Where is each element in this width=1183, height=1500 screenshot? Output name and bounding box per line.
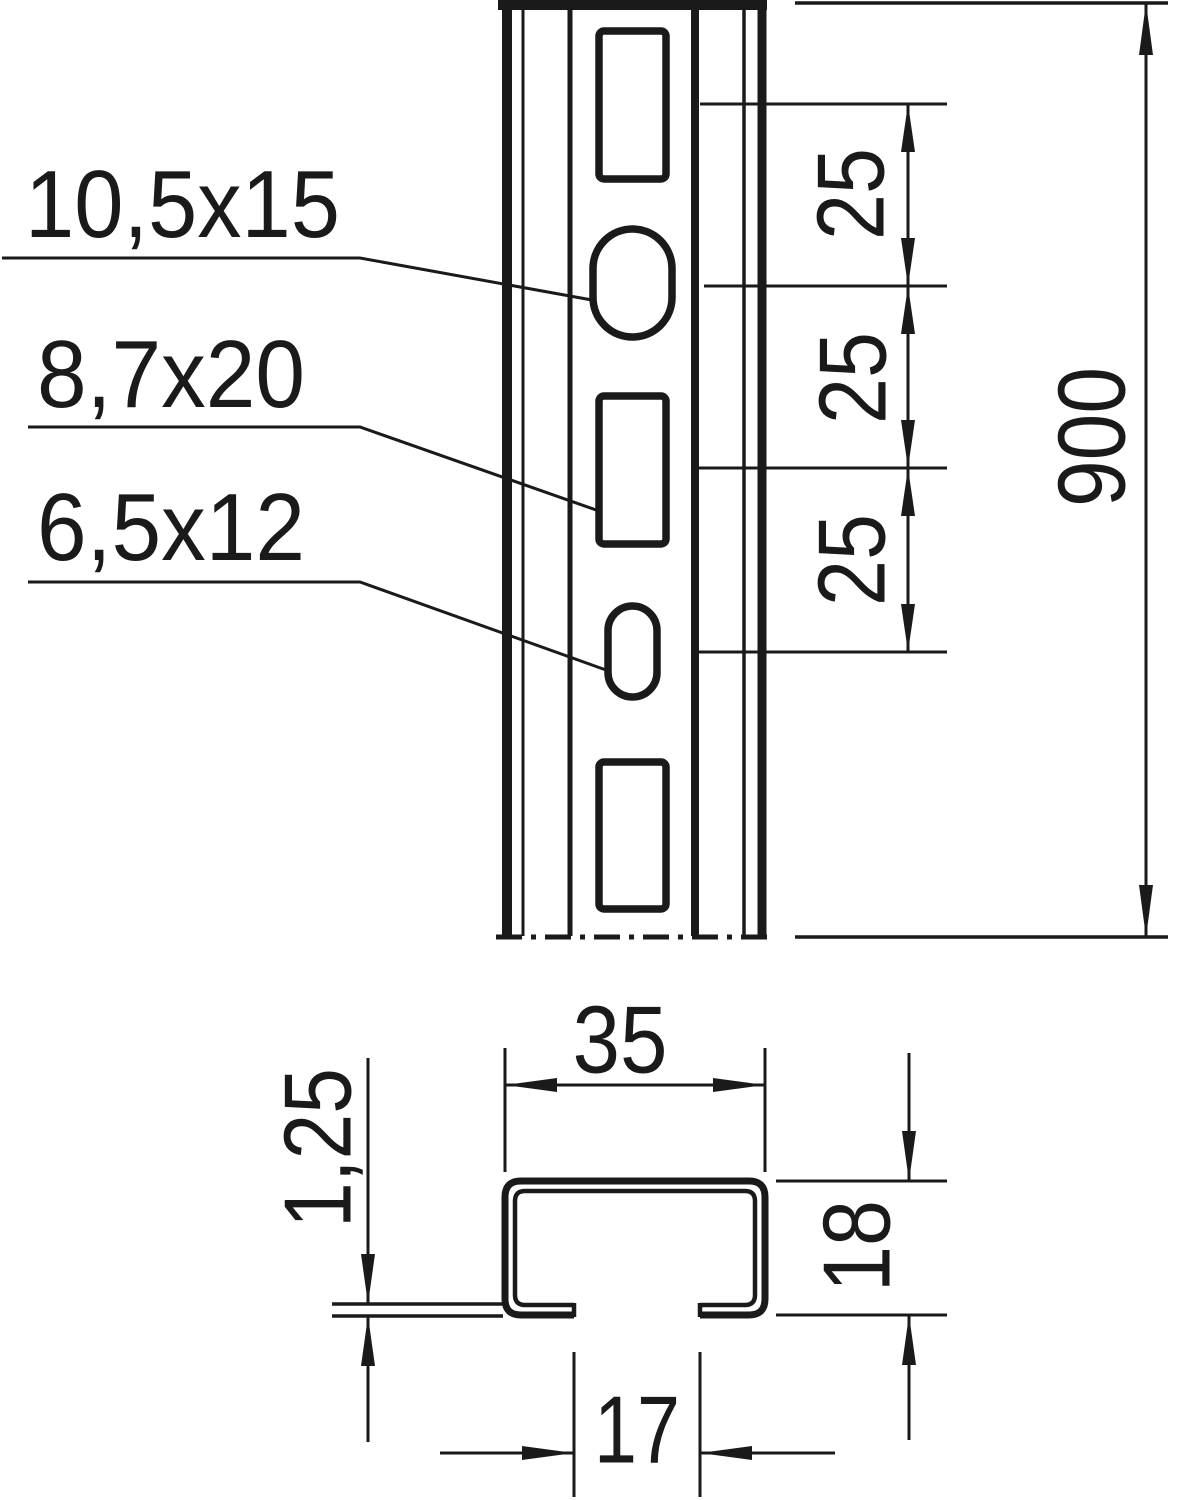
slot-hole-top: [599, 31, 666, 179]
height-dimension: 18: [776, 1053, 947, 1440]
slot-hole-bottom: [599, 762, 666, 909]
arrowhead: [361, 1254, 375, 1304]
length-dimension-value: 900: [1039, 367, 1146, 507]
profile-inner-contour: [515, 1191, 755, 1305]
leader-line-small-oblong: [28, 582, 606, 670]
arrowhead: [902, 1315, 916, 1365]
arrowhead: [700, 1446, 752, 1460]
hole-label-large-oblong: 10,5x15: [25, 151, 340, 258]
arrowhead: [505, 1078, 557, 1092]
hole-label-middle-slot: 8,7x20: [37, 321, 305, 428]
arrowhead: [1139, 885, 1153, 937]
pitch-dimension-value-3: 25: [799, 514, 906, 606]
thickness-dimension: 1,25: [265, 1058, 504, 1442]
height-dimension-value: 18: [804, 1200, 911, 1292]
arrowhead: [901, 604, 915, 652]
drawing-page: 10,5x15 8,7x20 6,5x12 25 25 25 900: [0, 0, 1183, 1500]
oblong-hole-large: [593, 229, 672, 337]
technical-drawing: 10,5x15 8,7x20 6,5x12 25 25 25 900: [0, 0, 1183, 1500]
arrowhead: [901, 420, 915, 468]
hole-callouts: 10,5x15 8,7x20 6,5x12: [2, 151, 606, 670]
arrowhead: [1139, 3, 1153, 55]
width-dimension: 35: [505, 987, 765, 1173]
pitch-dimensions: 25 25 25: [697, 104, 947, 652]
pitch-dimension-value-1: 25: [798, 148, 905, 240]
oblong-hole-small: [608, 606, 657, 697]
slot-hole-middle: [599, 396, 666, 544]
arrowhead: [901, 104, 915, 152]
arrowhead: [901, 286, 915, 334]
profile-outer-contour: [505, 1181, 765, 1315]
arrowhead: [901, 468, 915, 516]
opening-dimension: 17: [440, 1352, 835, 1497]
arrowhead: [361, 1316, 375, 1366]
thickness-dimension-value: 1,25: [265, 1068, 372, 1228]
arrowhead: [522, 1446, 574, 1460]
arrowhead: [902, 1131, 916, 1181]
opening-dimension-value: 17: [594, 1377, 680, 1484]
arrowhead: [713, 1078, 765, 1092]
width-dimension-value: 35: [573, 987, 668, 1094]
pitch-dimension-value-2: 25: [800, 332, 907, 424]
section-view: [505, 1181, 765, 1317]
arrowhead: [901, 238, 915, 286]
length-dimension: 900: [795, 3, 1168, 937]
hole-label-small-oblong: 6,5x12: [37, 474, 305, 581]
